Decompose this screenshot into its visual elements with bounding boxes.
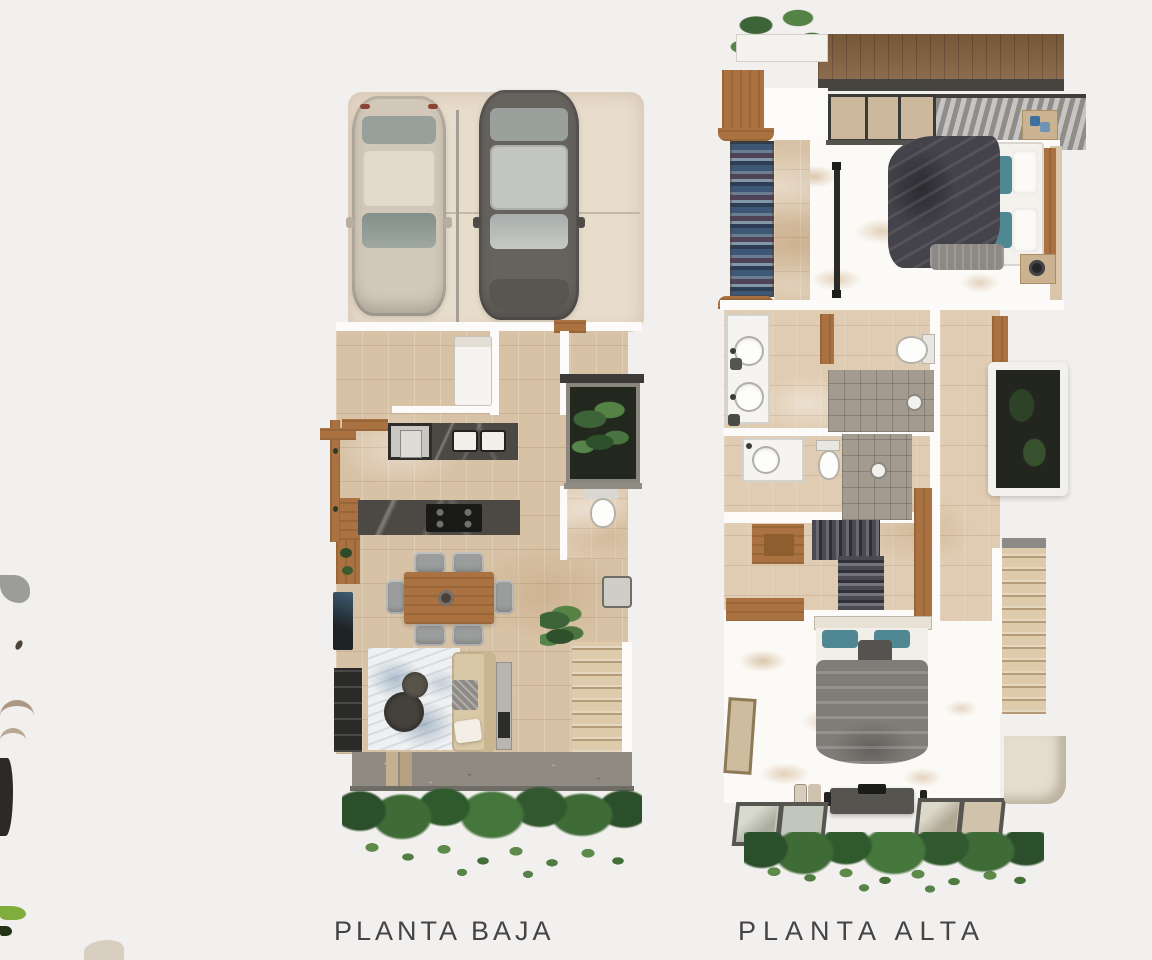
artifact-dark-leaf	[0, 926, 12, 936]
floor-plan-sheet: PLANTA BAJA	[0, 0, 1152, 960]
artifact-dark-speck	[14, 639, 24, 651]
artifact-brown-arc	[0, 728, 26, 753]
artifact-beige-blob	[84, 940, 124, 960]
artifact-brown-arc	[0, 700, 34, 732]
artifact-dark-blob	[0, 758, 13, 836]
render-artifacts	[0, 0, 1152, 960]
artifact-green-leaf	[0, 906, 26, 920]
artifact-gray-blob	[0, 575, 30, 603]
